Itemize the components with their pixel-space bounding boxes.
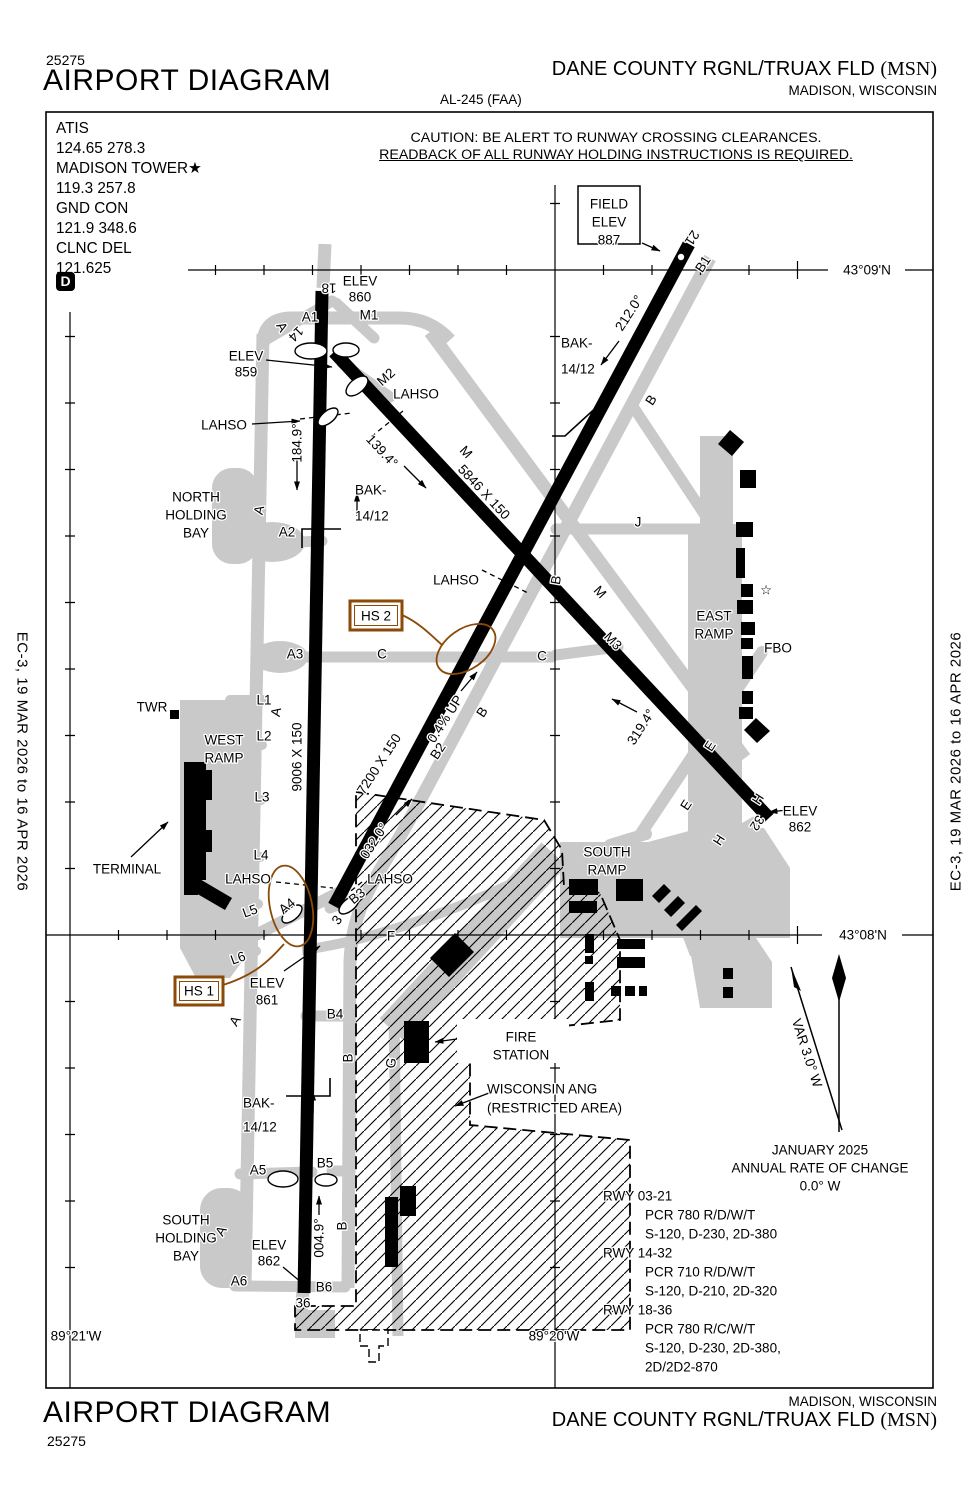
hdg-319: 319.4°	[624, 706, 658, 747]
comm-clnc: CLNC DEL	[56, 239, 202, 259]
hs2-label: HS 2	[361, 609, 391, 624]
rwy18-number: 18	[321, 281, 336, 296]
lon-label-8920: 89°20'W	[529, 1329, 580, 1344]
roc-3: 0.0° W	[800, 1179, 841, 1194]
field-elev-word2: ELEV	[592, 215, 627, 230]
east-ramp-2: RAMP	[694, 627, 733, 642]
rwydata-10: 2D/2D2-870	[645, 1360, 718, 1375]
twy-b-letter-4: B	[341, 1053, 356, 1062]
var-label: VAR 3.0° W	[789, 1017, 825, 1090]
twy-a-letter-4: A	[226, 1013, 243, 1028]
fbo-label: FBO	[764, 641, 792, 656]
twy-c-letter-2: C	[537, 649, 547, 664]
ang-1: WISCONSIN ANG	[487, 1082, 597, 1097]
elev-859-value: 859	[235, 365, 258, 380]
runway-18-36	[304, 291, 322, 1293]
rwydata-3: S-120, D-230, 2D-380	[645, 1227, 777, 1242]
airport-city-bottom: MADISON, WISCONSIN	[552, 1394, 937, 1409]
elev-860-value: 860	[349, 290, 372, 305]
caution-note: CAUTION: BE ALERT TO RUNWAY CROSSING CLE…	[370, 130, 862, 164]
edge-date-right: EC-3, 19 MAR 2026 to 16 APR 2026	[948, 552, 965, 972]
airport-name-block-bottom: MADISON, WISCONSIN DANE COUNTY RGNL/TRUA…	[552, 1394, 937, 1432]
lahso-1: LAHSO	[393, 387, 439, 402]
north-holding-2: HOLDING	[165, 508, 227, 523]
west-ramp-2: RAMP	[204, 751, 243, 766]
bak-s1b: 14/12	[243, 1120, 277, 1135]
fire-station-2: STATION	[493, 1048, 550, 1063]
south-holding-3: BAY	[173, 1249, 199, 1264]
rwydata-9: S-120, D-230, 2D-380,	[645, 1341, 781, 1356]
twr-label: TWR	[137, 700, 168, 715]
bak-s1a: BAK-	[243, 1096, 275, 1111]
rwydata-6: S-120, D-210, 2D-320	[645, 1284, 777, 1299]
twy-m-letter-1: M	[457, 443, 476, 461]
lon-label-8921: 89°21'W	[51, 1329, 102, 1344]
comm-clnc-freq: 121.625	[56, 259, 202, 279]
lahso-3: LAHSO	[433, 573, 479, 588]
rwy3-number: 3	[329, 913, 346, 928]
terminal-label: TERMINAL	[93, 862, 162, 877]
rwydata-2: PCR 780 R/D/W/T	[645, 1208, 755, 1223]
twy-c-letter-1: C	[377, 647, 387, 662]
field-elev-word1: FIELD	[590, 197, 629, 212]
ang-2: (RESTRICTED AREA)	[487, 1101, 622, 1116]
twy-l1: L1	[256, 693, 271, 708]
rwydata-1: RWY 03-21	[603, 1189, 672, 1204]
terminal-leader	[131, 822, 168, 857]
twy-b-letter-5: B	[335, 1221, 350, 1230]
south-ramp-1: SOUTH	[583, 845, 630, 860]
twy-m-letter-2: M	[591, 583, 610, 601]
hdg-184: 184.9°	[290, 423, 305, 462]
elev-859-word: ELEV	[229, 349, 264, 364]
east-ramp-1: EAST	[696, 609, 731, 624]
comm-gnd: GND CON	[56, 199, 202, 219]
airport-ident-bottom: (MSN)	[880, 1409, 937, 1431]
twy-b4: B4	[327, 1007, 344, 1022]
twy-f: F	[387, 929, 395, 944]
field-elev-leader	[642, 243, 660, 251]
bak-n1a: BAK-	[355, 483, 387, 498]
hdg-139: 139.4°	[363, 432, 401, 471]
lat-label-0909: 43°09'N	[843, 263, 891, 278]
lahso-4: LAHSO	[225, 872, 271, 887]
bak-n2b: 14/12	[561, 362, 595, 377]
twy-l4: L4	[253, 848, 269, 863]
chart-number-bottom: 25275	[47, 1433, 86, 1449]
bak-n1b: 14/12	[355, 509, 389, 524]
rwydata-5: PCR 710 R/D/W/T	[645, 1265, 755, 1280]
twy-b6: B6	[316, 1280, 333, 1295]
elev-862-word: ELEV	[783, 804, 818, 819]
comm-tower: MADISON TOWER★	[56, 159, 202, 179]
comm-gnd-freq: 121.9 348.6	[56, 219, 202, 239]
twy-m1: M1	[360, 308, 379, 323]
twy-b-letter-1: B	[642, 392, 659, 408]
twy-j: J	[635, 515, 642, 530]
fire-station-1: FIRE	[506, 1030, 537, 1045]
hdg-004: 004.9°	[312, 1218, 327, 1257]
south-holding-2: HOLDING	[155, 1231, 217, 1246]
dim-9006: 9006 X 150	[290, 722, 305, 791]
rwydata-4: RWY 14-32	[603, 1246, 672, 1261]
elev-860-word: ELEV	[343, 274, 378, 289]
comm-atis-freq: 124.65 278.3	[56, 139, 202, 159]
south-holding-1: SOUTH	[162, 1213, 209, 1228]
twy-a3: A3	[287, 647, 304, 662]
caution-line1: CAUTION: BE ALERT TO RUNWAY CROSSING CLE…	[370, 130, 862, 147]
roc-1: JANUARY 2025	[772, 1143, 868, 1158]
fire-station-building	[404, 1021, 429, 1063]
tower-building	[170, 710, 179, 719]
runway-21-threshold-dot	[678, 254, 684, 260]
elev-862b-value: 862	[258, 1254, 281, 1269]
airport-name-bottom: DANE COUNTY RGNL/TRUAX FLD (MSN)	[552, 1409, 937, 1432]
airport-diagram-page: 25275 AIRPORT DIAGRAM AL-245 (FAA) DANE …	[0, 0, 978, 1500]
twy-a2: A2	[279, 525, 296, 540]
lahso-5: LAHSO	[367, 872, 413, 887]
twy-b-letter-2: B	[548, 574, 564, 585]
bak-n2a: BAK-	[561, 336, 593, 351]
comm-tower-freq: 119.3 257.8	[56, 179, 202, 199]
comm-block: ATIS 124.65 278.3 MADISON TOWER★ 119.3 2…	[56, 119, 202, 279]
edge-date-left: EC-3, 19 MAR 2026 to 16 APR 2026	[14, 552, 31, 972]
rwydata-7: RWY 18-36	[603, 1303, 672, 1318]
twy-a-letter-3: A	[268, 706, 284, 717]
elev-862b-word: ELEV	[252, 1238, 287, 1253]
twy-a5: A5	[250, 1163, 267, 1178]
twy-a1: A1	[302, 310, 319, 325]
north-holding-3: BAY	[183, 526, 209, 541]
rwydata-8: PCR 780 R/C/W/T	[645, 1322, 755, 1337]
rwy36-number: 36	[295, 1296, 310, 1311]
west-ramp-1: WEST	[205, 733, 244, 748]
elev-861-word: ELEV	[250, 976, 285, 991]
d-atis-icon: D	[56, 272, 75, 291]
roc-2: ANNUAL RATE OF CHANGE	[731, 1161, 908, 1176]
caution-line2: READBACK OF ALL RUNWAY HOLDING INSTRUCTI…	[370, 147, 862, 164]
hs1-label: HS 1	[184, 984, 214, 999]
north-holding-1: NORTH	[172, 490, 220, 505]
south-ramp-2: RAMP	[587, 863, 626, 878]
comm-atis: ATIS	[56, 119, 202, 139]
elev-861-value: 861	[256, 993, 279, 1008]
runway-03-21	[334, 244, 689, 906]
elev-862-value: 862	[789, 820, 812, 835]
page-title-bottom: AIRPORT DIAGRAM	[43, 1396, 331, 1430]
twy-b5: B5	[317, 1156, 334, 1171]
lat-label-0908: 43°08'N	[839, 928, 887, 943]
twy-a6: A6	[231, 1274, 248, 1289]
field-elev-value: 887	[598, 233, 621, 248]
twy-l2: L2	[256, 729, 271, 744]
twy-b-letter-3: B	[473, 704, 490, 720]
twy-l3: L3	[254, 790, 269, 805]
lahso-2: LAHSO	[201, 418, 247, 433]
beacon-star-icon: ☆	[760, 583, 772, 598]
